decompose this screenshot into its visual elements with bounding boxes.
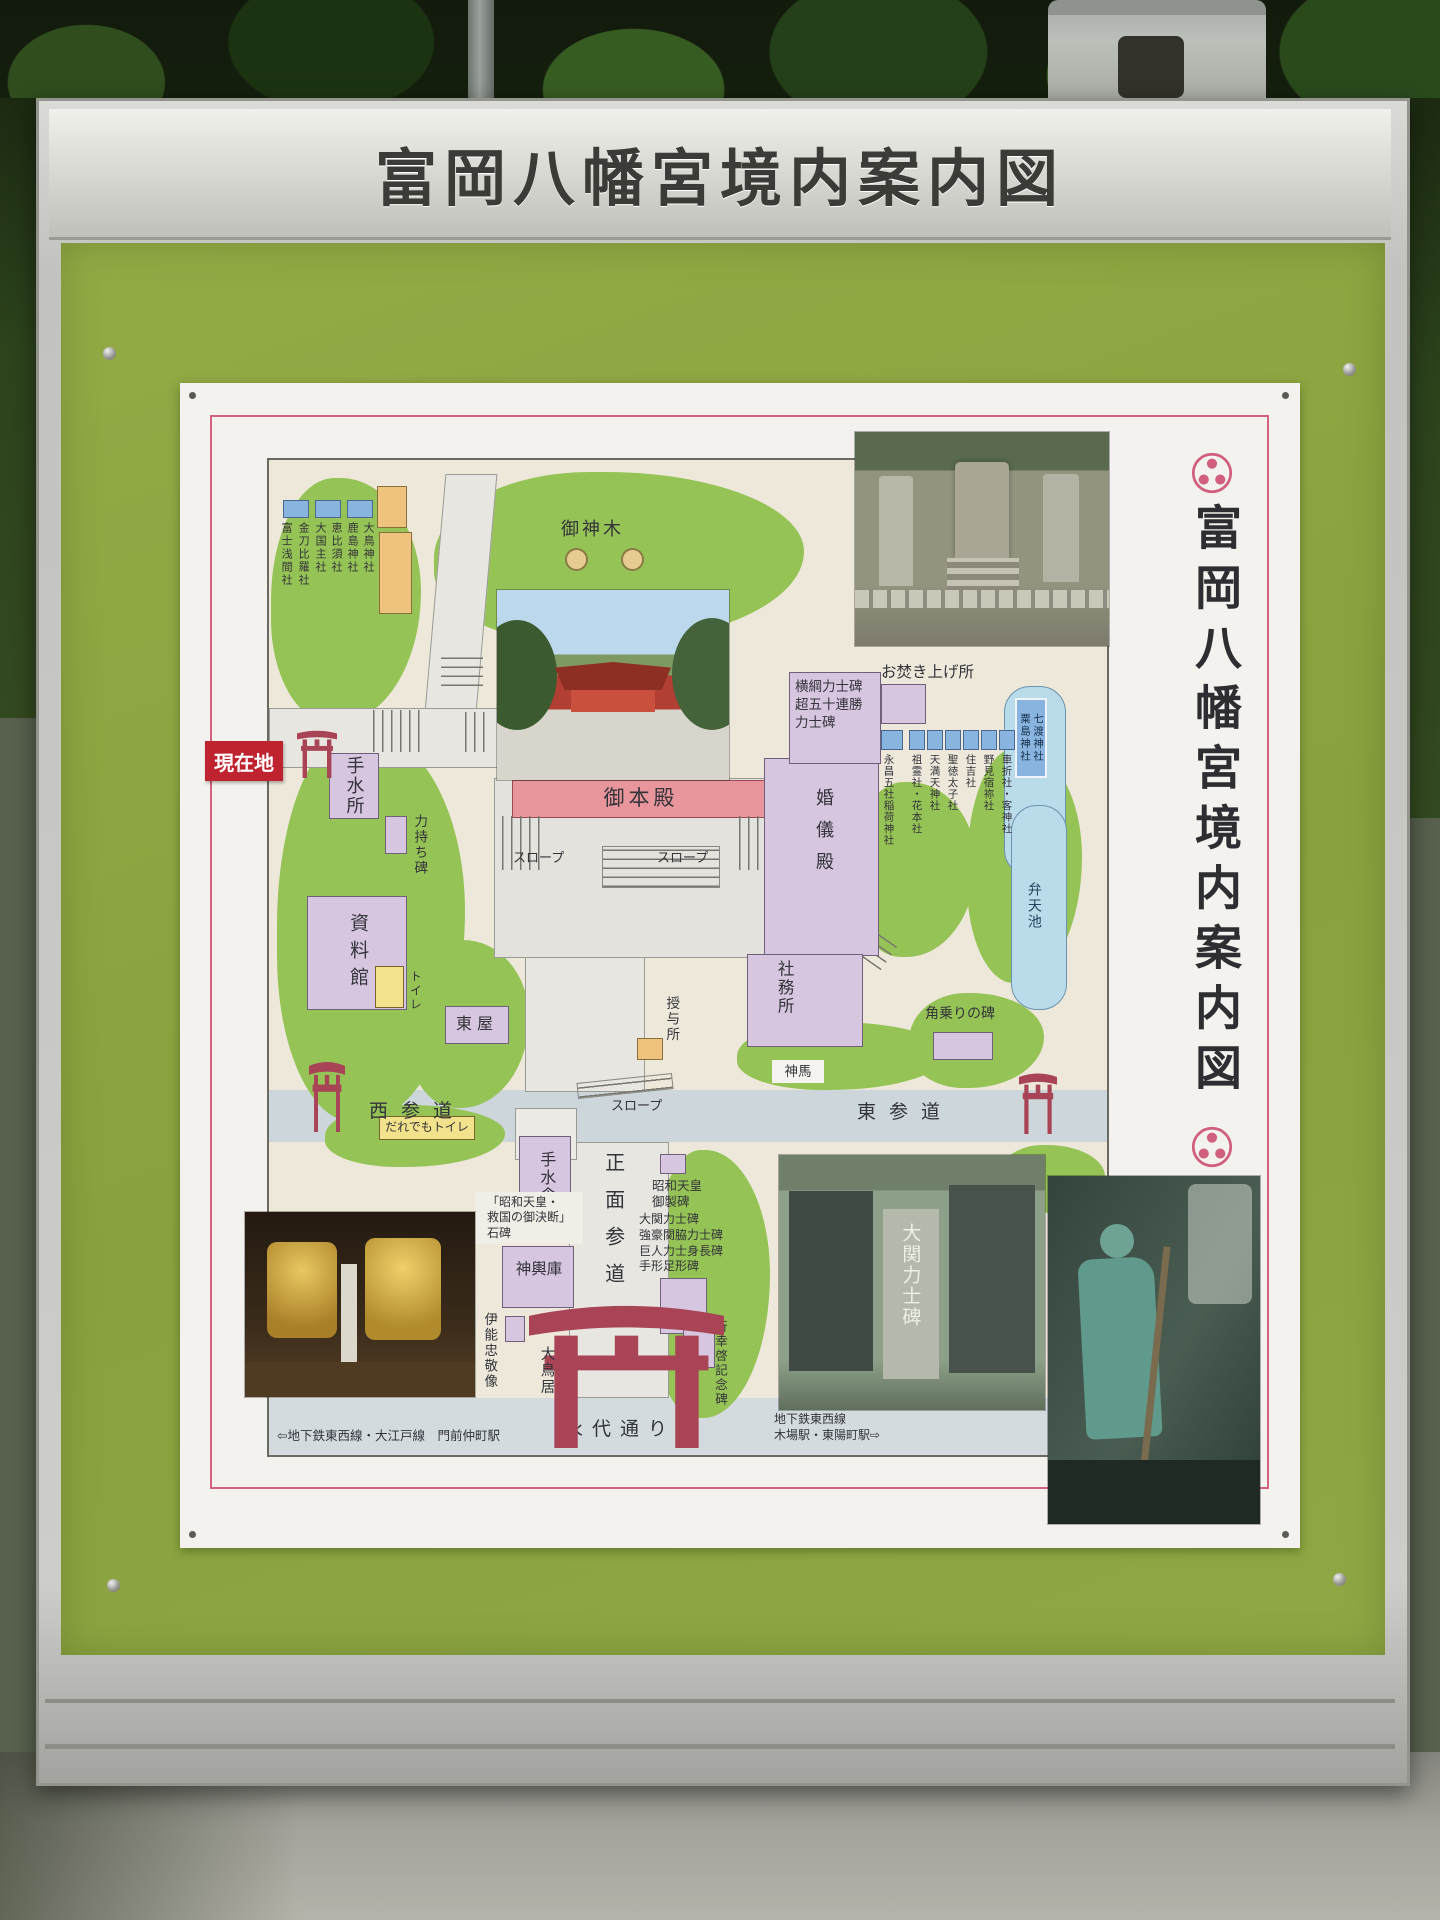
- statue-base: [1048, 1460, 1260, 1524]
- sign-title: 富岡八幡宮境内案内図: [375, 128, 1065, 218]
- tomoe-crest-icon: [1190, 451, 1234, 495]
- map-poster: 富岡八幡宮境内案内図 現在地: [180, 383, 1300, 1548]
- east-sando-torii-icon: [1019, 1070, 1057, 1134]
- shrine-photo: [497, 590, 729, 780]
- signboard-frame: 富岡八幡宮境内案内図 富岡八幡宮境内案内図: [36, 98, 1410, 1786]
- shinme-label: 神馬: [785, 1063, 812, 1080]
- photo-stone: [879, 476, 913, 586]
- poster-vertical-title: 富岡八幡宮境内案内図: [1178, 503, 1248, 1143]
- slope-label: スロープ: [513, 850, 564, 867]
- chikaramochi-monument-box: [385, 816, 407, 854]
- tomoe-crest-icon: [1190, 1125, 1234, 1169]
- juyosho-box: [637, 1038, 663, 1060]
- sub-shrine-box: [945, 730, 961, 750]
- screw: [107, 1579, 120, 1592]
- shrine-outbuilding: [379, 532, 412, 614]
- juyosho-label: 授与所: [663, 996, 680, 1058]
- photo-tree: [672, 618, 729, 730]
- ozeki-monuments-label: 大関力士碑 強豪関脇力士碑 巨人力士身長碑 手形足形碑: [639, 1212, 723, 1275]
- west-sando-torii-icon: [309, 1058, 345, 1132]
- sacred-tree-icon: [565, 548, 588, 571]
- photo-fence: [855, 590, 1109, 608]
- current-location-badge: 現在地: [205, 741, 283, 781]
- sacred-tree-icon: [621, 548, 644, 571]
- shinme-stable: 神馬: [772, 1060, 824, 1083]
- shrine-label: 恵比須社: [329, 522, 343, 617]
- ozeki-monument-photo: 大関力士碑: [779, 1155, 1045, 1410]
- azumaya-label: 東屋: [456, 1015, 498, 1035]
- temizusho-label: 手水所: [342, 756, 365, 816]
- center-path: [525, 955, 645, 1092]
- sign-title-plate: 富岡八幡宮境内案内図: [49, 109, 1391, 240]
- photo-sky-patch: [1188, 1184, 1252, 1304]
- slope-label: スロープ: [657, 850, 708, 867]
- station-label-monzennakacho: ⇦地下鉄東西線・大江戸線 門前仲町駅: [277, 1428, 500, 1444]
- chikaramochi-label: 力持ち碑: [411, 814, 428, 898]
- photo-building: [571, 690, 655, 712]
- shrine-label: 大国主社: [313, 522, 327, 617]
- kakunori-monument-box: [933, 1032, 993, 1060]
- showa-gyosei-box: [660, 1154, 686, 1174]
- pin: [1282, 392, 1289, 399]
- goshinboku-label: 御神木: [561, 518, 624, 541]
- pin: [1282, 1531, 1289, 1538]
- photo-steps: [947, 558, 1019, 592]
- stairs: [465, 712, 491, 752]
- ino-tadataka-statue-photo: [1048, 1176, 1260, 1524]
- toilet-label: トイレ: [407, 970, 422, 1032]
- otakiage-label: お焚き上げ所: [881, 663, 974, 683]
- yokozuna-monument-photo: [855, 432, 1109, 646]
- photo-of-shrine-map-sign: 富岡八幡宮境内案内図 富岡八幡宮境内案内図: [0, 0, 1440, 1920]
- shrine-label: 富士浅間社: [279, 522, 293, 634]
- shamusho-label: 社務所: [773, 960, 794, 1045]
- sub-shrine-box: [881, 730, 903, 750]
- sub-shrine-box: [927, 730, 943, 750]
- frame-groove: [45, 1744, 1395, 1749]
- kyukoku-stone-label: 「昭和天皇・ 救国の御決断」 石碑: [487, 1195, 571, 1242]
- showa-gyosei-label: 昭和天皇 御製碑: [652, 1178, 702, 1210]
- azumaya-building: 東屋: [445, 1006, 509, 1044]
- utility-pole: [468, 0, 494, 114]
- great-torii-icon: [529, 1296, 724, 1448]
- shrine-label: 永昌五社稲荷神社: [881, 754, 894, 894]
- mikoshiko-label: 神輿庫: [505, 1260, 573, 1280]
- pin: [189, 392, 196, 399]
- kongiden-label: 婚儀殿: [812, 788, 835, 908]
- shrine-label: 住吉社: [963, 754, 976, 824]
- kyukoku-stone-box: 「昭和天皇・ 救国の御決断」 石碑: [475, 1192, 583, 1244]
- shrine-label: 聖徳太子社: [945, 754, 958, 849]
- statue-head: [1100, 1224, 1134, 1258]
- map-area: 御本殿 スロープ スロープ スロープ 御神木 大鳥神社: [267, 458, 1109, 1457]
- sub-shrine-box: [347, 500, 373, 518]
- sub-shrine-box: [315, 500, 341, 518]
- sub-shrine-box: [999, 730, 1015, 750]
- ino-statue-label: 伊能忠敬像: [481, 1312, 498, 1416]
- sub-shrine-box: [963, 730, 979, 750]
- left-foliage-strip: [0, 98, 40, 718]
- photo-mikoshi: [365, 1238, 441, 1340]
- lantern-cap: [1048, 0, 1266, 15]
- nanawatari-shrine-box: 七渡神社 粟島神社: [1015, 698, 1047, 778]
- east-sando-label: 東参道: [857, 1101, 953, 1125]
- shrine-label: 車折社・客神社: [999, 754, 1012, 879]
- sub-shrine-box: [981, 730, 997, 750]
- shrine-label: 祖霊社・花本社: [909, 754, 922, 879]
- stairs: [373, 710, 427, 752]
- west-torii-icon: [297, 728, 337, 778]
- photo-stone: [789, 1191, 873, 1371]
- nanawatari-label: 七渡神社 粟島神社: [1018, 713, 1044, 763]
- west-sando-label: 西参道: [369, 1100, 465, 1124]
- shrine-label: 天満天神社: [927, 754, 940, 849]
- sub-shrine-box: [283, 500, 309, 518]
- shiryokan-label: 資料館: [345, 913, 369, 994]
- photo-stone: [955, 462, 1009, 558]
- pin: [189, 1531, 196, 1538]
- slope-label: スロープ: [611, 1098, 662, 1115]
- screw: [103, 347, 116, 360]
- photo-roof: [555, 662, 671, 690]
- great-torii-label: 大鳥居: [537, 1346, 556, 1420]
- photo-mikoshi: [267, 1242, 337, 1338]
- shrine-label: 鹿島神社: [345, 522, 359, 617]
- gohonden-label: 御本殿: [604, 786, 679, 813]
- green-backing-panel: 富岡八幡宮境内案内図 現在地: [61, 243, 1385, 1655]
- mikoshi-photo: [245, 1212, 475, 1397]
- frame-groove: [45, 1699, 1395, 1703]
- yokozuna-monument-label: 横綱力士碑 超五十連勝 力士碑: [795, 678, 863, 733]
- screw: [1333, 1573, 1346, 1586]
- photo-stone: [1043, 474, 1079, 582]
- shrine-label: 大鳥神社: [361, 522, 375, 617]
- station-label-kiba-toyocho: 地下鉄東西線 木場駅・東陽町駅⇨: [774, 1412, 880, 1443]
- photo-floor: [245, 1362, 475, 1397]
- gohonden-main-hall: 御本殿: [512, 780, 770, 818]
- shrine-outbuilding: [377, 486, 407, 528]
- kakunori-label: 角乗りの碑: [925, 1005, 995, 1023]
- benten-pond-label: 弁天池: [1025, 882, 1043, 954]
- stairs: [441, 652, 483, 686]
- photo-tree: [497, 620, 557, 730]
- photo-stone-pillar: 大関力士碑: [883, 1209, 939, 1379]
- photo-stone: [949, 1185, 1035, 1373]
- photo-banner: [341, 1264, 357, 1374]
- otakiage-box: [881, 684, 926, 724]
- lantern-window: [1118, 36, 1184, 98]
- sub-shrine-box: [909, 730, 925, 750]
- toilet-box: [375, 966, 404, 1008]
- screw: [1343, 363, 1356, 376]
- shrine-label: 金刀比羅社: [296, 522, 310, 634]
- shrine-label: 野見宿祢社: [981, 754, 994, 849]
- ino-statue-box: [505, 1316, 525, 1342]
- shamusho-building: [747, 954, 863, 1047]
- carved-stone-text: 大関力士碑: [897, 1223, 921, 1363]
